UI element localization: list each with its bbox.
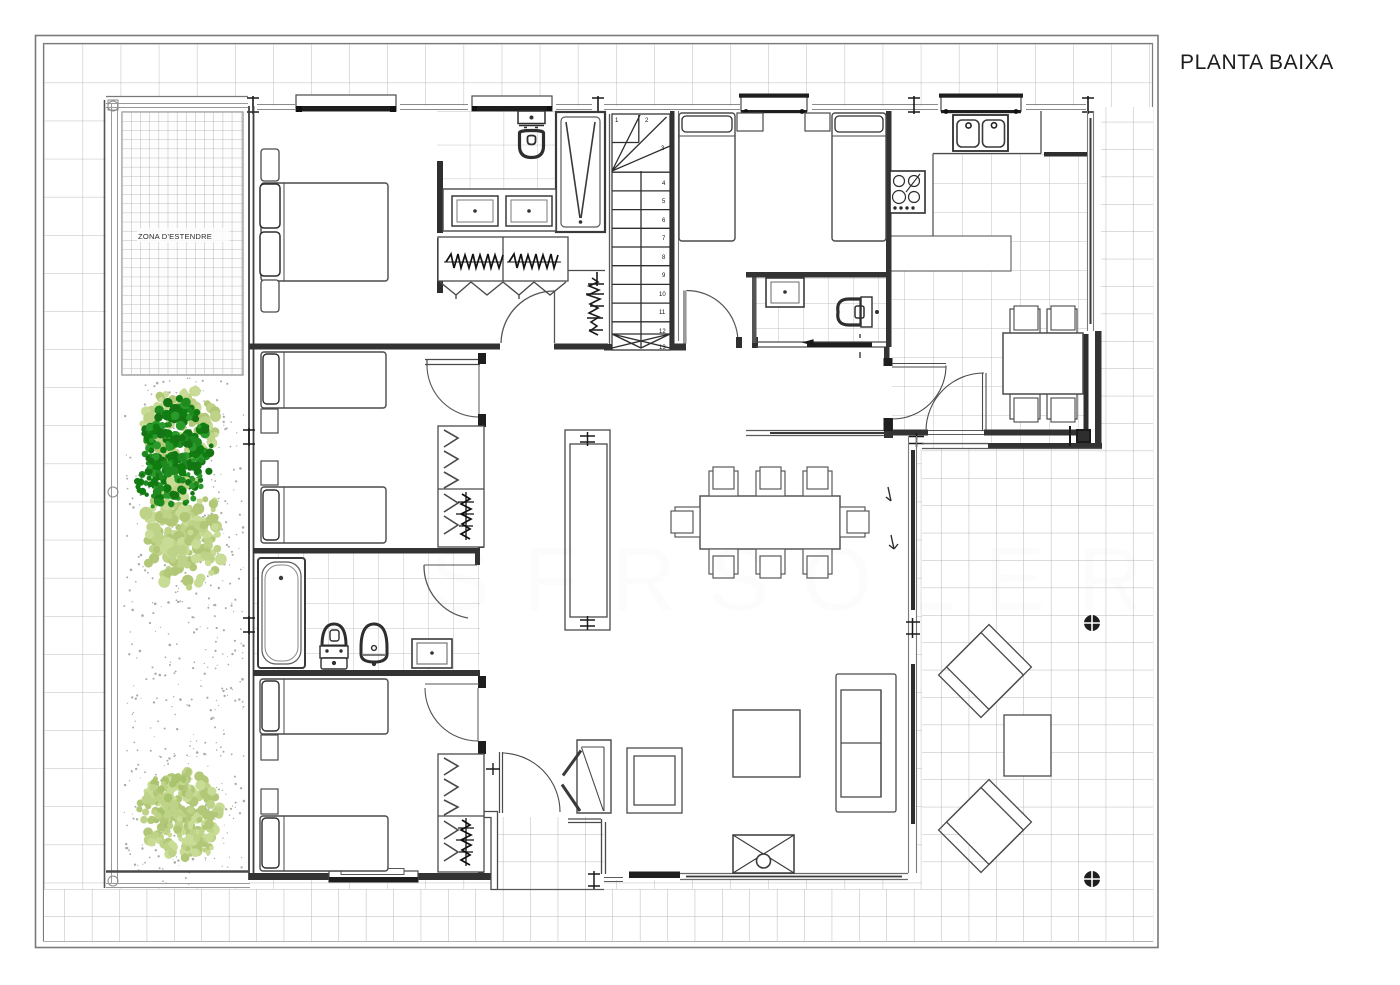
- svg-text:12: 12: [659, 329, 666, 335]
- svg-text:S F R S O L E R: S F R S O L E R: [430, 530, 1147, 630]
- svg-text:PLANTA BAIXA: PLANTA BAIXA: [1180, 51, 1334, 74]
- svg-text:ZONA D'ESTENDRE: ZONA D'ESTENDRE: [138, 232, 212, 241]
- svg-text:11: 11: [659, 310, 666, 316]
- svg-text:10: 10: [659, 292, 666, 298]
- svg-text:13: 13: [659, 345, 666, 351]
